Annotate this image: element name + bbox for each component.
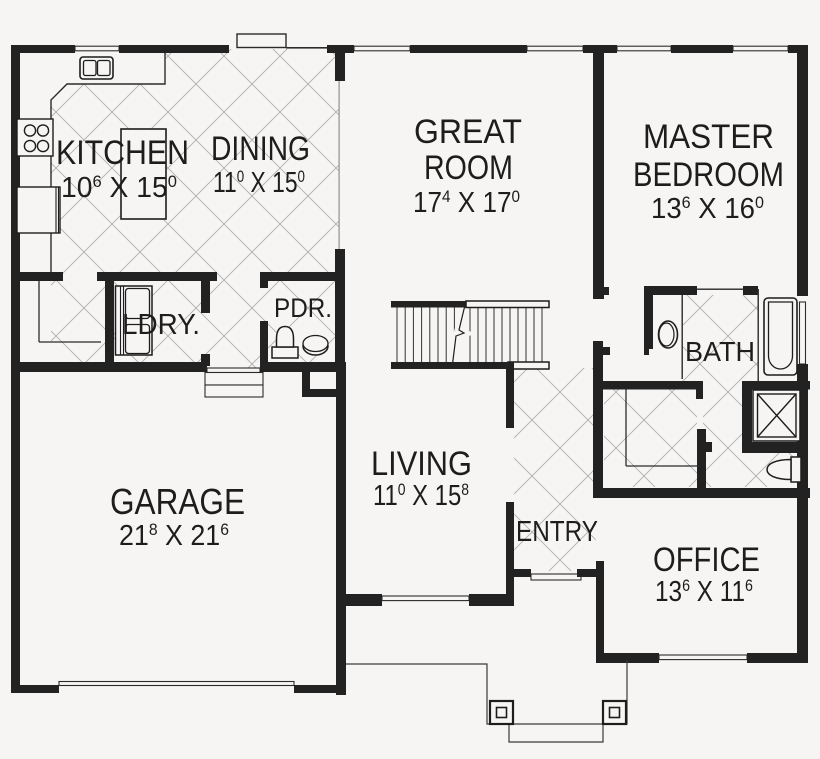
svg-text:136 X 116: 136 X 116 [655,576,753,608]
svg-text:ROOM: ROOM [424,149,513,187]
svg-text:218 X 216: 218 X 216 [119,520,229,552]
svg-text:LDRY.: LDRY. [122,309,200,341]
svg-text:KITCHEN: KITCHEN [56,134,189,172]
svg-text:GARAGE: GARAGE [110,481,245,522]
svg-text:174 X 170: 174 X 170 [413,187,520,219]
svg-text:ENTRY: ENTRY [516,516,598,548]
svg-text:BEDROOM: BEDROOM [633,156,784,194]
svg-text:GREAT: GREAT [414,113,522,151]
svg-text:136 X 160: 136 X 160 [651,193,764,225]
svg-text:DINING: DINING [211,130,310,168]
svg-text:LIVING: LIVING [371,445,472,483]
svg-text:OFFICE: OFFICE [653,541,760,579]
svg-text:106 X 150: 106 X 150 [61,172,177,204]
svg-text:PDR.: PDR. [274,293,332,323]
svg-text:BATH: BATH [685,336,755,367]
svg-text:110 X 158: 110 X 158 [373,480,469,512]
svg-text:110 X 150: 110 X 150 [213,167,305,199]
svg-text:MASTER: MASTER [643,118,774,156]
